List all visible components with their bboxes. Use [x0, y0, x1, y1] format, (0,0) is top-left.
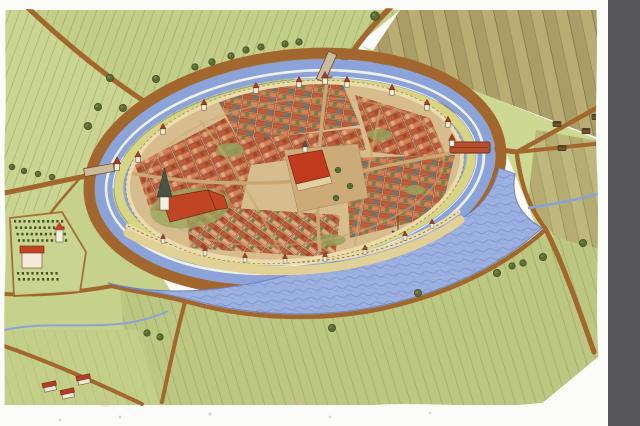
orchard-tree: [47, 220, 49, 223]
orchard-tree: [55, 272, 57, 275]
bush: [119, 104, 126, 111]
courtyard-green: [405, 185, 425, 195]
bush-crown: [94, 103, 101, 110]
tower-body: [161, 129, 165, 134]
bush-crown: [84, 122, 91, 129]
orchard-tree: [64, 233, 66, 236]
bush-crown: [493, 269, 500, 276]
bush-crown: [209, 59, 215, 65]
bush-crown: [539, 253, 546, 260]
tower-body: [254, 88, 258, 93]
tower-body: [446, 122, 450, 127]
orchard-tree: [42, 220, 44, 223]
bush: [192, 64, 198, 70]
orchard-tree: [37, 278, 39, 281]
orchard-tree: [32, 239, 34, 242]
bush: [493, 269, 500, 276]
bush-highlight: [36, 172, 38, 174]
bush: [35, 171, 41, 177]
orchard-tree: [31, 272, 33, 275]
bush: [296, 39, 302, 45]
bush-crown: [258, 44, 264, 50]
bush: [152, 75, 159, 82]
tower-body: [243, 258, 247, 263]
bush: [243, 47, 249, 53]
orchard-tree: [45, 233, 47, 236]
orchard-tree: [56, 220, 58, 223]
bush-highlight: [145, 331, 147, 333]
orchard-tree: [27, 239, 29, 242]
bush: [520, 260, 526, 266]
bush: [328, 324, 335, 331]
bush-highlight: [10, 165, 12, 167]
bush-crown: [414, 289, 421, 296]
square-tree: [333, 195, 339, 201]
tower-body: [283, 259, 287, 264]
speckle: [119, 416, 122, 419]
bush-crown: [157, 334, 163, 340]
tower-body: [136, 157, 140, 162]
orchard-tree: [61, 220, 63, 223]
bush-crown: [296, 39, 302, 45]
bush: [258, 44, 264, 50]
tower-body: [322, 78, 327, 84]
tower-body: [430, 224, 434, 229]
tower-body: [202, 105, 206, 110]
orchard-tree: [28, 278, 30, 281]
speckle: [59, 419, 62, 422]
bush: [282, 41, 288, 47]
bush: [9, 164, 15, 170]
tower-body: [345, 82, 349, 87]
hut-roof: [582, 128, 590, 130]
bush-highlight: [86, 124, 89, 127]
orchard-tree: [23, 278, 25, 281]
bush: [509, 263, 515, 269]
bush-highlight: [283, 42, 285, 44]
bush-crown: [243, 47, 249, 53]
courtyard-green: [368, 129, 392, 141]
bush-highlight: [154, 77, 157, 80]
orchard-tree: [15, 226, 17, 229]
orchard-tree: [48, 226, 50, 229]
square-tree: [347, 183, 353, 189]
orchard-tree: [50, 233, 52, 236]
bush-crown: [144, 330, 150, 336]
orchard-tree: [17, 272, 19, 275]
square-tree: [335, 167, 341, 173]
orchard-tree: [19, 220, 21, 223]
bush: [209, 59, 215, 65]
orchard-tree: [36, 272, 38, 275]
orchard-tree: [22, 272, 24, 275]
bush-highlight: [50, 175, 52, 177]
orchard-tree: [53, 226, 55, 229]
bush: [144, 330, 150, 336]
bush-crown: [9, 164, 15, 170]
bush-highlight: [193, 65, 195, 67]
manor-house: [22, 252, 42, 268]
orchard-tree: [32, 278, 34, 281]
tree-crown: [347, 183, 353, 189]
orchard-tree: [52, 278, 54, 281]
bush-highlight: [581, 241, 584, 244]
bush-highlight: [495, 271, 498, 274]
orchard-tree: [29, 226, 31, 229]
orchard-tree: [52, 220, 54, 223]
bush: [21, 168, 27, 174]
orchard-tree: [37, 239, 39, 242]
speckle: [329, 416, 332, 419]
hut-roof: [553, 121, 561, 123]
orchard-tree: [23, 239, 25, 242]
speckle: [429, 412, 432, 415]
bush: [94, 103, 101, 110]
tower-body: [161, 239, 165, 244]
bush-crown: [371, 12, 380, 21]
tower-body: [425, 105, 429, 110]
field-southwest-hatching: [4, 330, 160, 405]
orchard-tree: [18, 278, 20, 281]
bush-highlight: [22, 169, 24, 171]
orchard-tree: [21, 233, 23, 236]
orchard-tree: [18, 239, 20, 242]
orchard-tree: [25, 226, 27, 229]
bush-crown: [192, 64, 198, 70]
orchard-tree: [44, 226, 46, 229]
tower-body: [323, 257, 327, 262]
orchard-tree: [31, 233, 33, 236]
bush-highlight: [229, 54, 231, 56]
bush-crown: [49, 174, 55, 180]
town-hall-turret: [303, 147, 307, 152]
orchard-tree: [42, 278, 44, 281]
tower-body: [203, 251, 207, 256]
orchard-tree: [51, 239, 53, 242]
bush-crown: [21, 168, 27, 174]
bush-crown: [228, 53, 234, 59]
bush: [49, 174, 55, 180]
bush: [579, 239, 586, 246]
bush-highlight: [372, 13, 375, 16]
bush-highlight: [297, 40, 299, 42]
hut-roof: [558, 145, 566, 147]
bush-crown: [106, 74, 113, 81]
side-panel: [608, 0, 640, 426]
orchard-tree: [26, 233, 28, 236]
bush-crown: [35, 171, 41, 177]
orchard-tree: [51, 272, 53, 275]
bush-highlight: [510, 264, 512, 266]
bush: [539, 253, 546, 260]
bush-highlight: [121, 106, 124, 109]
orchard-tree: [17, 233, 19, 236]
tower-body: [297, 82, 301, 87]
field-hut: [582, 128, 590, 133]
orchard-tree: [28, 220, 30, 223]
orchard-tree: [35, 233, 37, 236]
bush-highlight: [244, 48, 246, 50]
tower-body: [403, 236, 407, 241]
tower-body: [363, 250, 367, 255]
town-illustration: Bird's-eye watercolour reconstruction of…: [0, 0, 640, 426]
bush-highlight: [108, 76, 111, 79]
bush-highlight: [158, 335, 160, 337]
orchard-tree: [41, 239, 43, 242]
bush-highlight: [521, 261, 523, 263]
bush-highlight: [541, 255, 544, 258]
orchard-tree: [20, 226, 22, 229]
tower-body: [450, 140, 455, 146]
manor-roof: [20, 246, 44, 253]
church-tower: [160, 196, 169, 210]
orchard-tree: [38, 220, 40, 223]
manor-tower: [56, 230, 63, 242]
orchard-tree: [65, 239, 67, 242]
bush-crown: [119, 104, 126, 111]
paint-smudge: [292, 398, 308, 404]
bush-highlight: [210, 60, 212, 62]
bush-crown: [152, 75, 159, 82]
orchard-tree: [47, 278, 49, 281]
tower-body: [114, 164, 119, 170]
bush-highlight: [259, 45, 261, 47]
bush-highlight: [416, 291, 419, 294]
field-hut: [558, 145, 566, 150]
bush-crown: [579, 239, 586, 246]
orchard-tree: [33, 220, 35, 223]
bush-crown: [509, 263, 515, 269]
bush-crown: [328, 324, 335, 331]
orchard-tree: [27, 272, 29, 275]
tree-crown: [333, 195, 339, 201]
bush-crown: [282, 41, 288, 47]
tower-body: [390, 90, 394, 95]
orchard-tree: [23, 220, 25, 223]
bush: [414, 289, 421, 296]
orchard-tree: [46, 239, 48, 242]
tree-crown: [335, 167, 341, 173]
bush-highlight: [330, 326, 333, 329]
bush: [157, 334, 163, 340]
bush: [106, 74, 113, 81]
paint-smudge: [99, 402, 111, 407]
speckle: [208, 412, 211, 415]
bush: [84, 122, 91, 129]
orchard-tree: [40, 233, 42, 236]
bush: [228, 53, 234, 59]
bush: [371, 12, 380, 21]
orchard-tree: [34, 226, 36, 229]
orchard-tree: [41, 272, 43, 275]
orchard-tree: [46, 272, 48, 275]
orchard-tree: [14, 220, 16, 223]
orchard-tree: [39, 226, 41, 229]
orchard-tree: [56, 278, 58, 281]
field-hut: [553, 121, 561, 126]
bush-highlight: [96, 105, 99, 108]
bush-crown: [520, 260, 526, 266]
window: Bird's-eye watercolour reconstruction of…: [0, 0, 640, 426]
